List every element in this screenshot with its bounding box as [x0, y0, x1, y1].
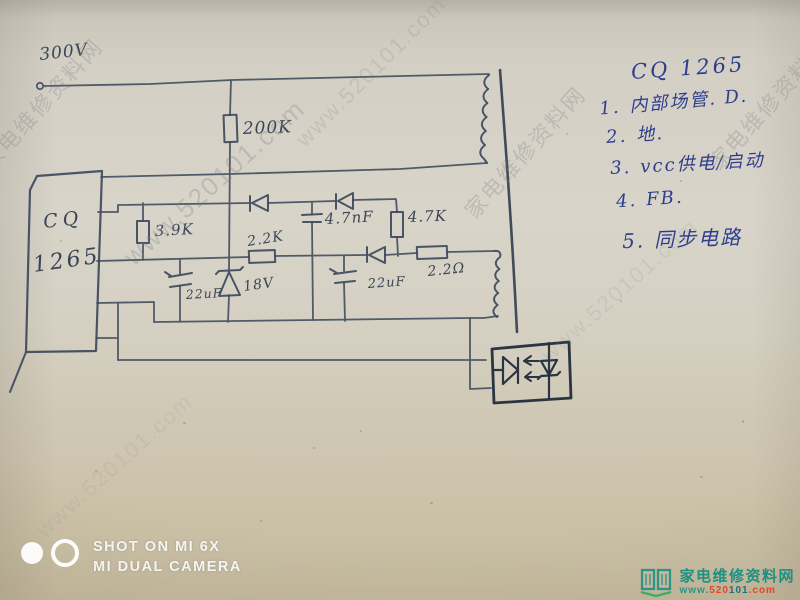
- supply-terminal: [37, 83, 43, 89]
- open-book-icon: [639, 567, 673, 598]
- url-520: 520: [709, 585, 729, 596]
- resistor-200k: [224, 115, 238, 142]
- diode-d2: [336, 193, 353, 209]
- capacitor-4n7: [302, 214, 322, 222]
- pin-number: 3.: [610, 157, 632, 179]
- wire-pin4: [97, 302, 154, 322]
- site-logo-url: www.520101.com: [679, 586, 795, 597]
- chip-edge-stroke: [10, 352, 26, 392]
- pin-number: 4.: [615, 190, 638, 212]
- label-3k9: 3.9K: [154, 220, 194, 240]
- chip-label-line2: 1265: [31, 244, 102, 278]
- label-300v: 300V: [38, 40, 89, 65]
- wire-300v-rail: [44, 74, 489, 86]
- photo-of-hand-drawn-schematic: 300V 200K CQ 1265 3.9K 2.2K 4.7nF 4.7K 2…: [0, 0, 800, 600]
- wire-4n7-branch: [312, 202, 313, 320]
- pin-number: 1.: [598, 97, 621, 120]
- url-101: 101: [729, 585, 749, 596]
- annotation-pin-5: 5.同步电路: [622, 221, 743, 254]
- wire-drain-rail: [101, 163, 487, 177]
- resistor-3k9: [137, 221, 149, 243]
- pin-desc: 地.: [636, 123, 665, 146]
- camera-lens-icon-ring: [51, 539, 79, 567]
- pin-number: 5.: [622, 228, 646, 253]
- site-logo-name: 家电维修资料网: [679, 569, 795, 585]
- wire-winding-return: [470, 316, 498, 318]
- label-22uf-a: 22uF: [184, 285, 223, 302]
- label-22uf-b: 22uF: [366, 274, 406, 292]
- pin-number: 2.: [605, 126, 628, 148]
- url-www: www.: [679, 585, 709, 596]
- pin-desc: FB.: [645, 187, 684, 211]
- camera-lens-icon-filled: [21, 542, 43, 564]
- annotation-pin-2: 2.地.: [605, 119, 665, 149]
- camera-badge-line2: MI DUAL CAMERA: [93, 559, 242, 575]
- wire-middle-rail: [97, 251, 494, 261]
- wire-vcc-bus: [228, 80, 231, 322]
- label-2r2: 2.2Ω: [426, 260, 466, 280]
- wire-ground-drop: [470, 318, 491, 389]
- camera-badge-line1: SHOT ON MI 6X: [93, 539, 220, 555]
- wire-22uf-b-branch: [344, 256, 345, 321]
- label-4k7: 4.7K: [407, 207, 448, 226]
- capacitor-22uf-a: [165, 272, 192, 287]
- optocoupler-light-arrows: [524, 356, 539, 381]
- diode-d1: [250, 195, 268, 211]
- url-com: .com: [749, 585, 776, 596]
- pin-desc: 同步电路: [654, 225, 743, 252]
- wire-pin5: [97, 303, 118, 360]
- site-logo: 家电维修资料网 www.520101.com: [639, 567, 795, 598]
- label-4n7: 4.7nF: [323, 207, 374, 228]
- transformer-primary-winding: [480, 75, 489, 163]
- label-200k: 200K: [241, 117, 292, 139]
- chip-label-line1: CQ: [42, 207, 84, 233]
- transformer-core: [500, 70, 517, 332]
- diode-d3: [367, 247, 385, 263]
- transformer-aux-winding: [493, 251, 500, 317]
- resistor-2k2: [249, 250, 275, 263]
- optocoupler-led: [494, 357, 518, 384]
- resistor-4k7: [391, 212, 403, 237]
- label-18v: 18V: [242, 275, 276, 295]
- capacitor-22uf-b: [330, 269, 356, 283]
- wire-ground-rail: [154, 318, 470, 322]
- optocoupler-photodiode: [538, 343, 560, 399]
- resistor-2r2: [417, 246, 447, 259]
- optocoupler: [492, 342, 571, 403]
- label-2k2: 2.2K: [245, 228, 285, 250]
